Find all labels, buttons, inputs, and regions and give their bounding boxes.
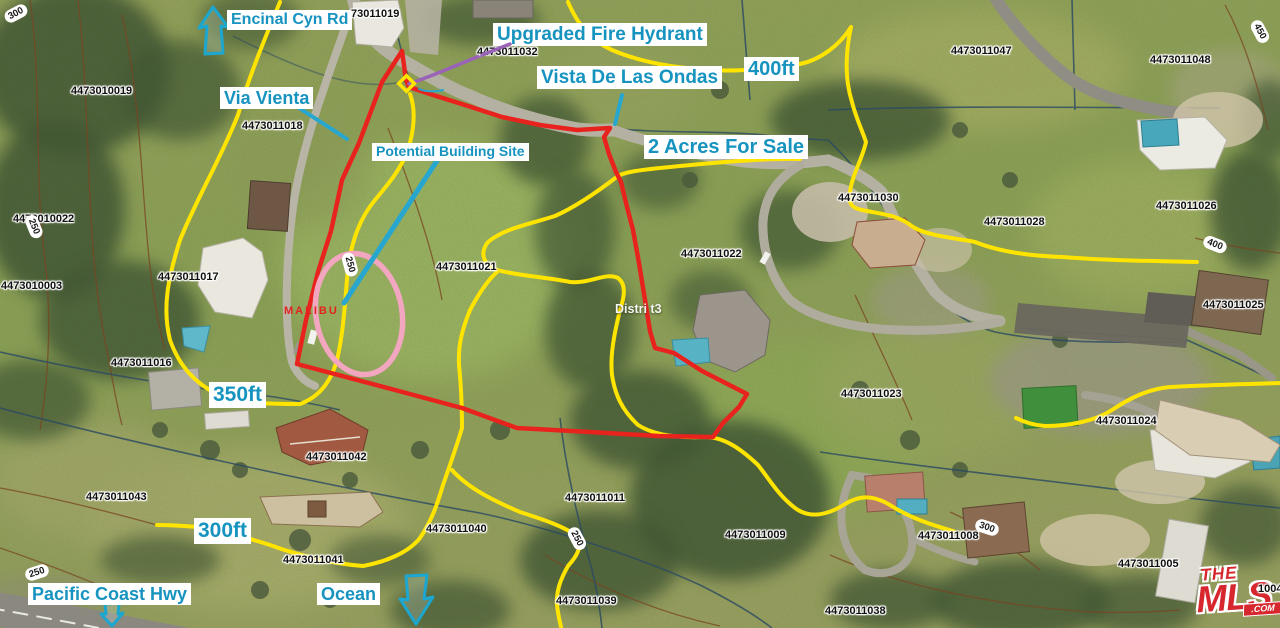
house-roof: [247, 181, 290, 232]
house-roof: [148, 368, 201, 410]
house-roof: [963, 502, 1030, 558]
house-roof: [204, 410, 249, 429]
house-roof: [308, 501, 326, 517]
house-roof: [352, 0, 404, 47]
house-roof: [473, 0, 533, 18]
pool: [1141, 119, 1179, 147]
aerial-map-canvas: [0, 0, 1280, 628]
aerial-listing-map: MALIBU Distri t3 THE MLS™ .COM Encinal C…: [0, 0, 1280, 628]
house-roof: [1191, 270, 1268, 334]
